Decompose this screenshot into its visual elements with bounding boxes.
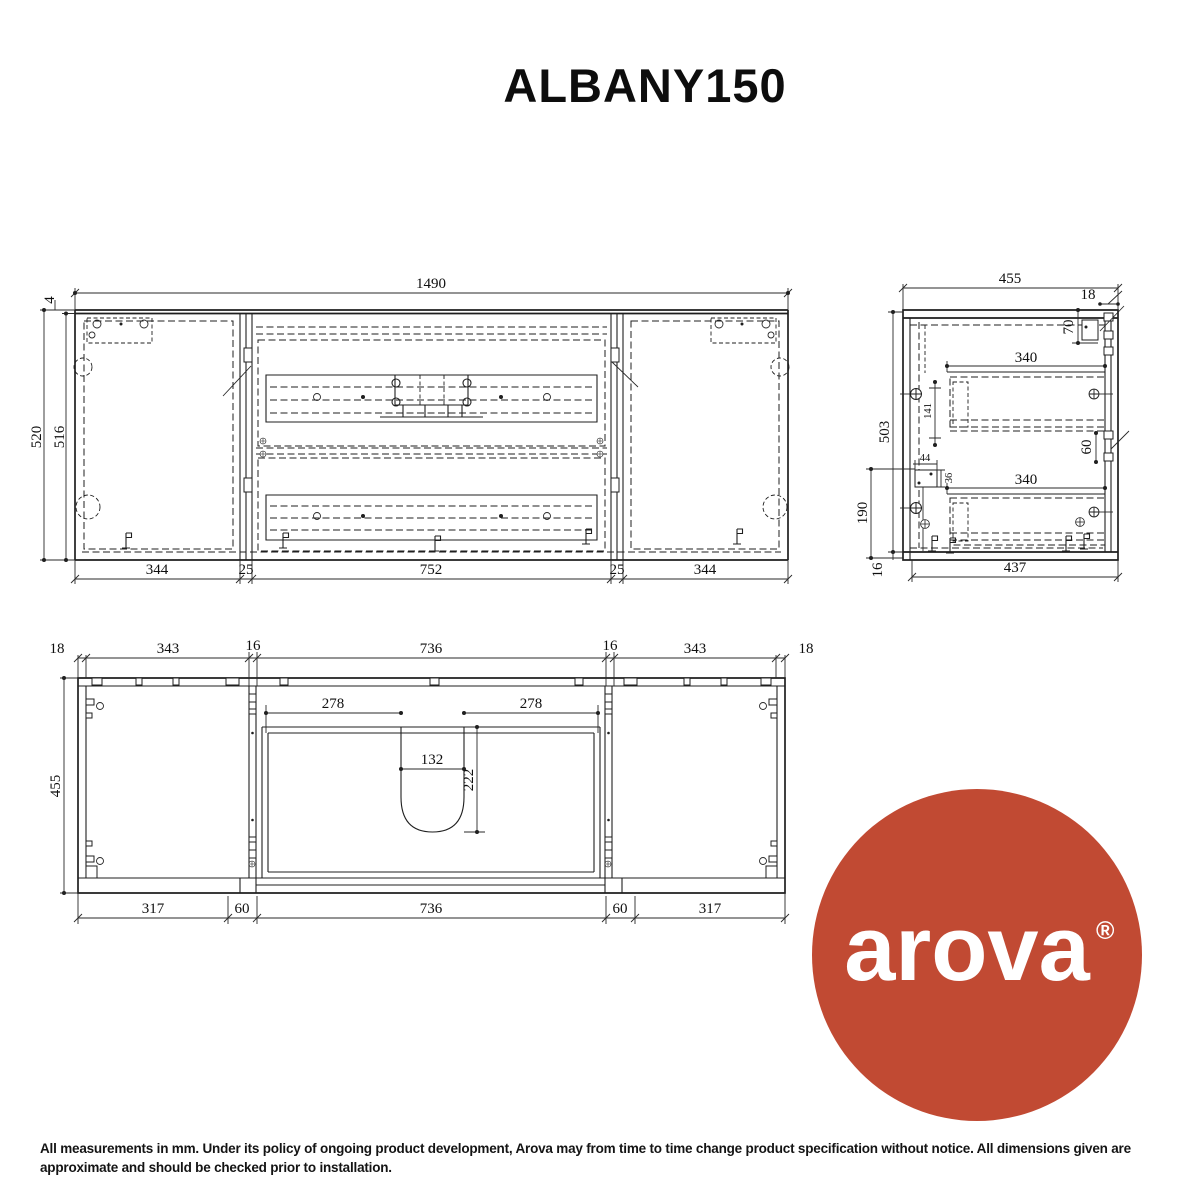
dim-plan-basin-left: 278 bbox=[322, 696, 345, 712]
dim-side-bracket-drop: 70 bbox=[1061, 320, 1077, 335]
dim-side-interior-height: 503 bbox=[877, 421, 893, 444]
front-view: 1490 4 520 516 344 25 752 25 344 bbox=[29, 276, 792, 584]
dim-plan-top-0: 18 bbox=[50, 641, 65, 657]
slide-rivets bbox=[314, 394, 551, 520]
dim-plan-basin-width: 132 bbox=[421, 752, 444, 768]
plan-view: 18 343 16 736 16 343 18 455 278 278 132 … bbox=[48, 638, 814, 924]
dim-plan-top-5: 343 bbox=[684, 641, 707, 657]
dim-side-cutout-height: 36 bbox=[944, 473, 955, 484]
dim-side-bracket-gap: 60 bbox=[1079, 440, 1095, 455]
upper-drawer-hidden bbox=[258, 340, 605, 446]
dim-plan-bottom-0: 317 bbox=[142, 901, 165, 917]
wall-bracket-top bbox=[1082, 320, 1098, 340]
basin-cutout bbox=[401, 727, 464, 832]
dim-side-interior-depth: 437 bbox=[1004, 560, 1027, 576]
registered-trademark-icon: ® bbox=[1096, 917, 1114, 946]
arova-logo: arova ® bbox=[812, 789, 1142, 1121]
dim-plan-bottom-1: 60 bbox=[235, 901, 250, 917]
dim-front-total-width: 1490 bbox=[416, 276, 446, 292]
dim-front-height-cabinet: 516 bbox=[52, 425, 68, 448]
dim-side-drawer-lower: 340 bbox=[1015, 472, 1038, 488]
left-door-hidden-outline bbox=[84, 321, 233, 549]
dim-side-depth: 455 bbox=[999, 271, 1022, 287]
disclaimer-text: All measurements in mm. Under its policy… bbox=[40, 1139, 1175, 1177]
dim-plan-top-6: 18 bbox=[799, 641, 814, 657]
dim-plan-top-1: 343 bbox=[157, 641, 180, 657]
arova-logo-wordmark: arova bbox=[844, 897, 1090, 1002]
drain-bracket bbox=[380, 375, 483, 417]
dim-front-bottom-3: 25 bbox=[610, 562, 625, 578]
dim-front-bottom-4: 344 bbox=[694, 562, 717, 578]
dim-side-drawer-upper: 340 bbox=[1015, 350, 1038, 366]
dim-side-base-height: 16 bbox=[870, 562, 886, 578]
dim-plan-bottom-2: 736 bbox=[420, 901, 443, 917]
dim-front-bottom-1: 25 bbox=[239, 562, 254, 578]
lower-drawer-hidden bbox=[258, 458, 605, 551]
right-door-hidden-outline bbox=[631, 321, 779, 549]
side-view: 141 bbox=[855, 271, 1129, 582]
dim-plan-basin-right: 278 bbox=[520, 696, 543, 712]
dim-front-bottom-0: 344 bbox=[146, 562, 169, 578]
plan-hardware bbox=[86, 678, 777, 878]
corner-bracket-screws bbox=[89, 320, 774, 338]
dim-side-cutout-bottom: 190 bbox=[855, 502, 871, 525]
dim-side-slide-offset: 141 bbox=[923, 403, 934, 419]
drawer-box-plan bbox=[262, 727, 600, 878]
slide-clips bbox=[244, 348, 619, 492]
dim-plan-bottom-3: 60 bbox=[613, 901, 628, 917]
dim-plan-top-4: 16 bbox=[603, 638, 619, 654]
upper-drawer-side-hidden bbox=[950, 377, 1105, 431]
dim-front-bottom-2: 752 bbox=[420, 562, 443, 578]
dim-front-height-overall: 520 bbox=[29, 426, 45, 449]
waste-cutout-detail bbox=[915, 470, 937, 487]
dim-side-back-offset: 18 bbox=[1081, 287, 1096, 303]
dim-front-top-gap: 4 bbox=[42, 296, 58, 304]
dim-plan-top-3: 736 bbox=[420, 641, 443, 657]
dim-plan-depth: 455 bbox=[48, 775, 64, 798]
dim-plan-top-2: 16 bbox=[246, 638, 262, 654]
drawing-sheet: ALBANY150 bbox=[0, 0, 1200, 1200]
dim-side-cutout-width: 44 bbox=[920, 453, 931, 464]
plan-dimension-lines bbox=[60, 652, 789, 924]
dim-plan-basin-depth: 222 bbox=[461, 769, 477, 792]
dim-plan-bottom-4: 317 bbox=[699, 901, 722, 917]
